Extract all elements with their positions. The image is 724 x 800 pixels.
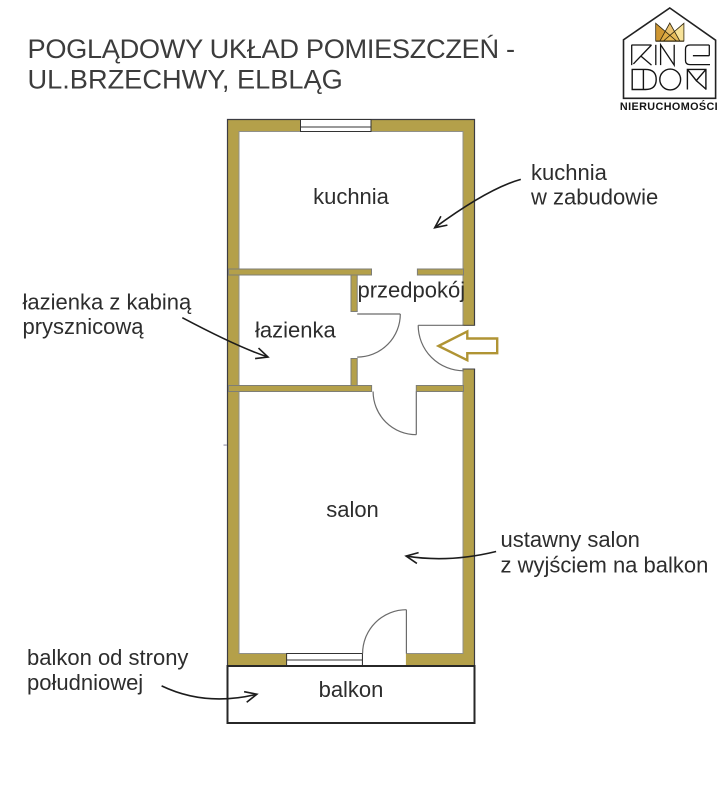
svg-text:POGLĄDOWY UKŁAD POMIESZCZEŃ -: POGLĄDOWY UKŁAD POMIESZCZEŃ - [28, 33, 515, 64]
svg-text:łazienka: łazienka [255, 318, 336, 343]
svg-text:kuchnia: kuchnia [531, 160, 608, 185]
svg-text:NIERUCHOMOŚCI: NIERUCHOMOŚCI [620, 100, 718, 113]
svg-text:z wyjściem na balkon: z wyjściem na balkon [501, 553, 709, 578]
svg-text:kuchnia: kuchnia [313, 184, 390, 209]
svg-text:prysznicową: prysznicową [23, 314, 145, 339]
svg-text:salon: salon [326, 497, 379, 522]
svg-text:balkon od strony: balkon od strony [27, 645, 188, 670]
svg-text:ustawny salon: ustawny salon [501, 527, 640, 552]
svg-text:w zabudowie: w zabudowie [530, 185, 658, 210]
svg-text:balkon: balkon [319, 677, 384, 702]
svg-text:UL.BRZECHWY, ELBLĄG: UL.BRZECHWY, ELBLĄG [28, 64, 343, 95]
svg-text:łazienka z kabiną: łazienka z kabiną [23, 290, 193, 315]
svg-text:przedpokój: przedpokój [358, 278, 466, 303]
svg-text:południowej: południowej [27, 670, 143, 695]
